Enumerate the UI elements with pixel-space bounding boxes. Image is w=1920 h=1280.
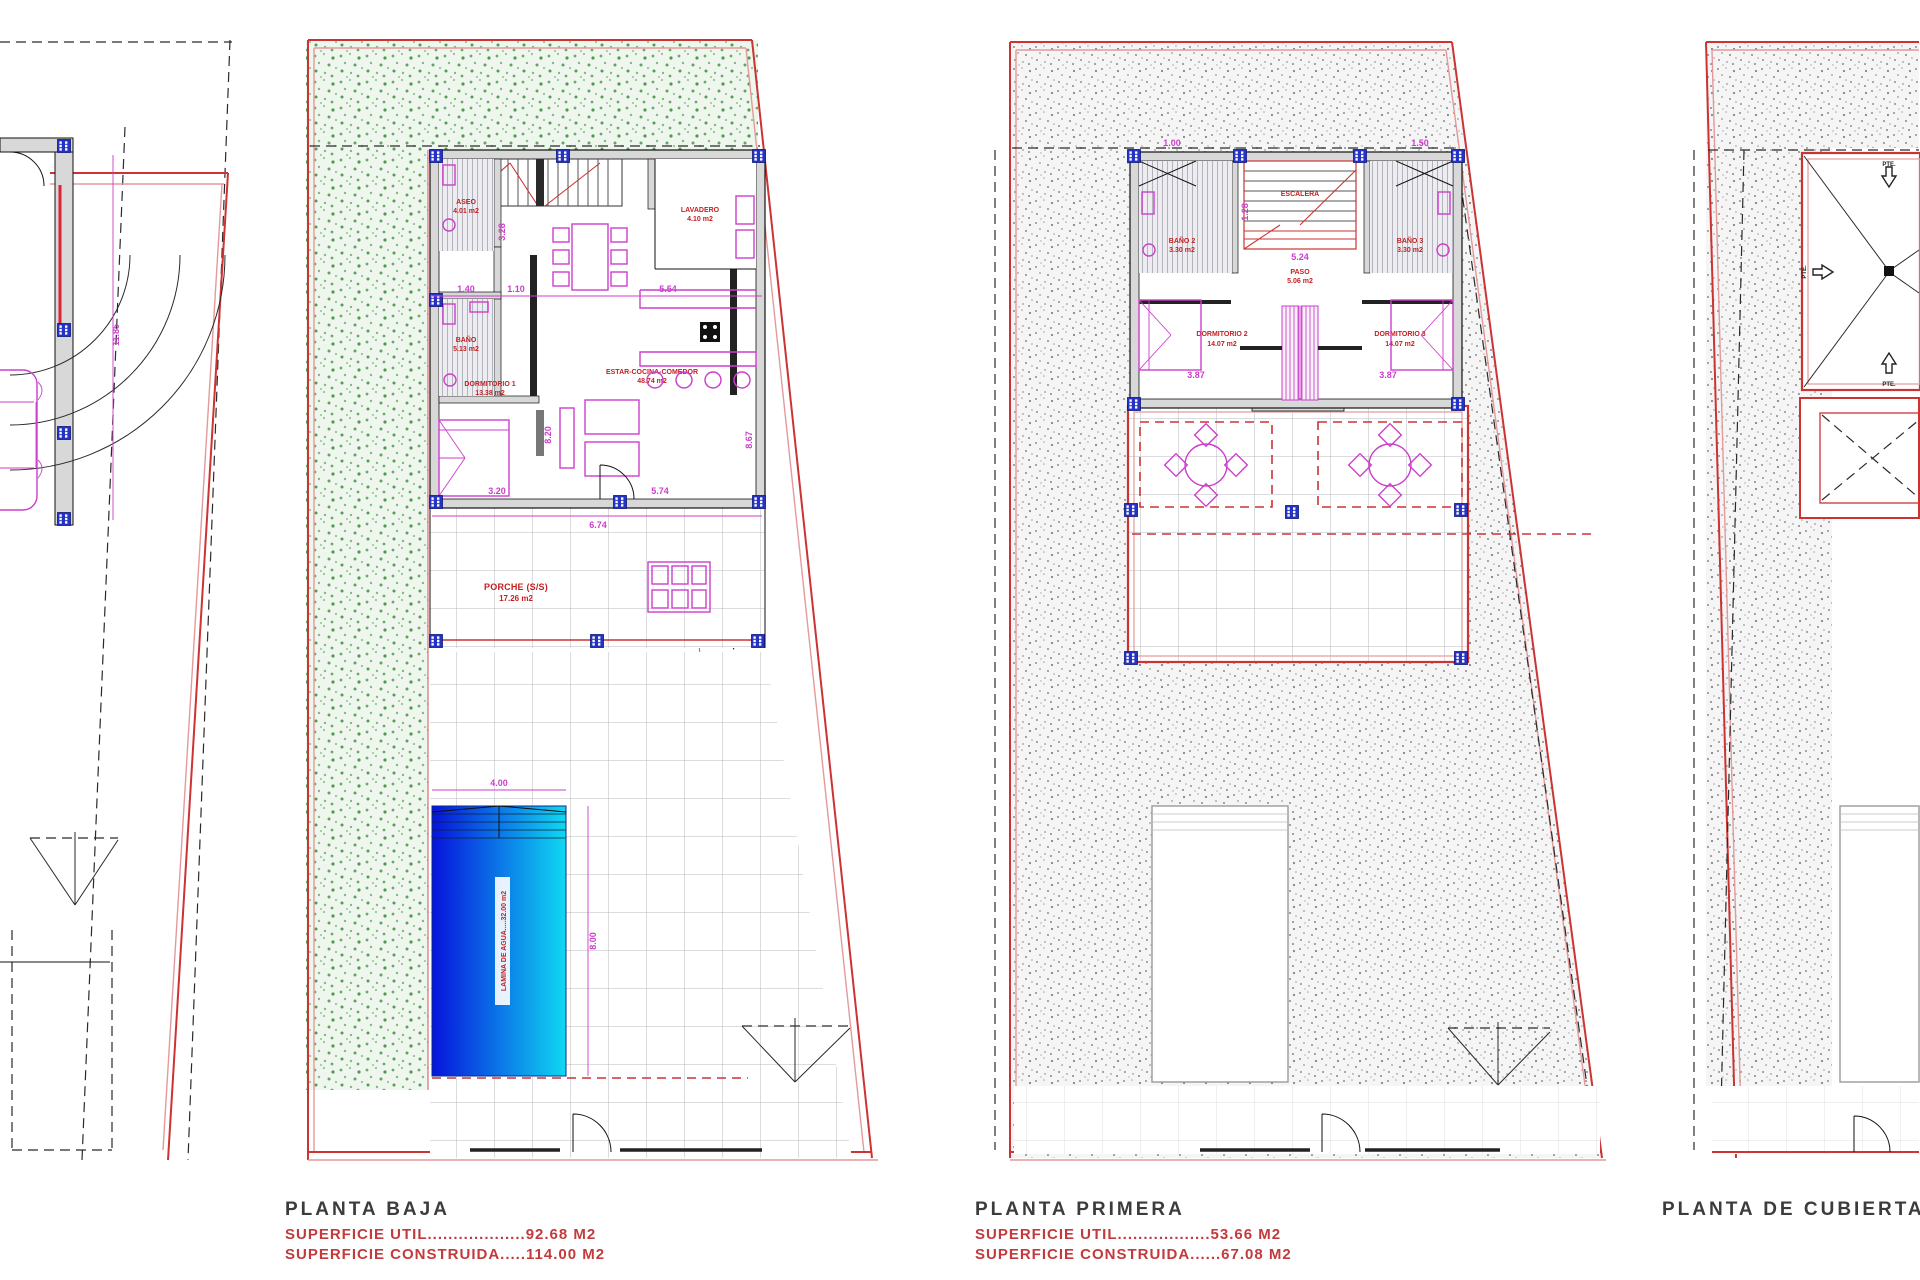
dim-128: 1.28	[1240, 203, 1250, 221]
room-label-escalera: ESCALERA	[1281, 191, 1320, 198]
room-area-aseo: 4.01 m2	[453, 208, 479, 215]
room-label-porche: PORCHE (S/S)	[484, 582, 548, 592]
room-area-bano: 5.13 m2	[453, 346, 479, 353]
room-area-lavadero: 4.10 m2	[687, 216, 713, 223]
room-area-dormitorio1: 13.38 m2	[475, 390, 505, 397]
dim-150: 1.50	[1411, 138, 1429, 148]
room-label-paso: PASO	[1290, 269, 1310, 276]
slope-label-top: PTE.	[1882, 162, 1896, 168]
wardrobe-left	[1282, 306, 1299, 400]
superficie-construida: SUPERFICIE CONSTRUIDA......67.08 M2	[975, 1246, 1292, 1263]
floor-plans-svg: 11.85 PORCHE (S/S	[0, 0, 1920, 1280]
slope-label-bottom: PTE.	[1882, 382, 1896, 388]
room-label-bano3: BAÑO 3	[1397, 236, 1424, 245]
title-planta-primera: PLANTA PRIMERA SUPERFICIE UTIL..........…	[975, 1199, 1292, 1263]
pool-outline-first-floor	[1152, 806, 1288, 1082]
superficie-util: SUPERFICIE UTIL..................53.66 M…	[975, 1226, 1281, 1243]
dim-320: 3.20	[488, 486, 506, 496]
room-label-aseo: ASEO	[456, 199, 476, 206]
plan-title: PLANTA PRIMERA	[975, 1199, 1185, 1220]
room-label-bano: BAÑO	[456, 335, 477, 344]
room-area-paso: 5.06 m2	[1287, 278, 1313, 285]
room-label-dormitorio1: DORMITORIO 1	[464, 381, 515, 388]
title-planta-baja: PLANTA BAJA SUPERFICIE UTIL.............…	[285, 1199, 605, 1263]
room-label-lavadero: LAVADERO	[681, 207, 720, 214]
dim-100: 1.00	[1163, 138, 1181, 148]
title-cubierta: PLANTA DE CUBIERTA	[1662, 1199, 1920, 1220]
roof-plan: PTE. PTE. PTE.	[1802, 153, 1920, 390]
car	[0, 370, 42, 510]
dim-554: 5.54	[659, 284, 677, 294]
house-planta-baja: ASEO 4.01 m2 BAÑO 5.13 m2 LAVADERO 4.10 …	[430, 150, 766, 531]
dim-867: 8.67	[744, 431, 754, 449]
superficie-construida: SUPERFICIE CONSTRUIDA.....114.00 M2	[285, 1246, 605, 1263]
panel-planta-baja: PORCHE (S/S) 17.26 m2	[285, 40, 878, 1263]
dim-674: 6.74	[589, 520, 607, 530]
dim-pool-width: 4.00	[490, 778, 508, 788]
house-planta-primera: ESCALERA BAÑO 2 3.30 m2 BAÑO 3 3.30 m2 5…	[1128, 138, 1465, 411]
dim-387-left: 3.87	[1187, 370, 1205, 380]
dim-110: 1.10	[507, 284, 525, 294]
slope-label-left: PTE.	[1802, 265, 1808, 279]
room-label-dormitorio2: DORMITORIO 2	[1196, 331, 1247, 338]
panel-site-partial: 11.85	[0, 40, 232, 1160]
flat-roof-porch	[1800, 398, 1919, 518]
dim-387-right: 3.87	[1379, 370, 1397, 380]
wardrobe-right	[1301, 306, 1318, 400]
terrace	[1125, 398, 1469, 665]
plan-title: PLANTA DE CUBIERTA	[1662, 1199, 1920, 1220]
room-area-bano2: 3.30 m2	[1169, 247, 1195, 254]
dim-site-height: 11.85	[111, 324, 121, 346]
panel-planta-primera: ESCALERA BAÑO 2 3.30 m2 BAÑO 3 3.30 m2 5…	[975, 42, 1606, 1263]
dim-140: 1.40	[457, 284, 475, 294]
plan-title: PLANTA BAJA	[285, 1199, 450, 1220]
site-entry-splay	[30, 832, 118, 905]
room-area-dormitorio3: 14.07 m2	[1385, 341, 1415, 348]
dim-524: 5.24	[1291, 252, 1309, 262]
room-area-bano3: 3.30 m2	[1397, 247, 1423, 254]
dim-820: 8.20	[543, 426, 553, 444]
room-area-porche: 17.26 m2	[499, 594, 533, 603]
room-bano2-floor	[1139, 161, 1232, 273]
superficie-util: SUPERFICIE UTIL...................92.68 …	[285, 1226, 596, 1243]
dim-328: 3.28	[497, 223, 507, 241]
pool-label: LAMINA DE AGUA.....32.00 m2	[501, 891, 508, 991]
pool-outline-roof	[1840, 806, 1919, 1082]
room-label-bano2: BAÑO 2	[1169, 236, 1196, 245]
dim-pool-height: 8.00	[588, 932, 598, 950]
stairs-first-floor: ESCALERA	[1244, 161, 1356, 249]
architectural-drawing-sheet: 11.85 PORCHE (S/S	[0, 0, 1920, 1280]
panel-cubierta: PTE. PTE. PTE. PLANTA DE CUBIERTA	[1662, 42, 1920, 1220]
room-label-dormitorio3: DORMITORIO 3	[1374, 331, 1425, 338]
room-area-dormitorio2: 14.07 m2	[1207, 341, 1237, 348]
dim-574: 5.74	[651, 486, 669, 496]
